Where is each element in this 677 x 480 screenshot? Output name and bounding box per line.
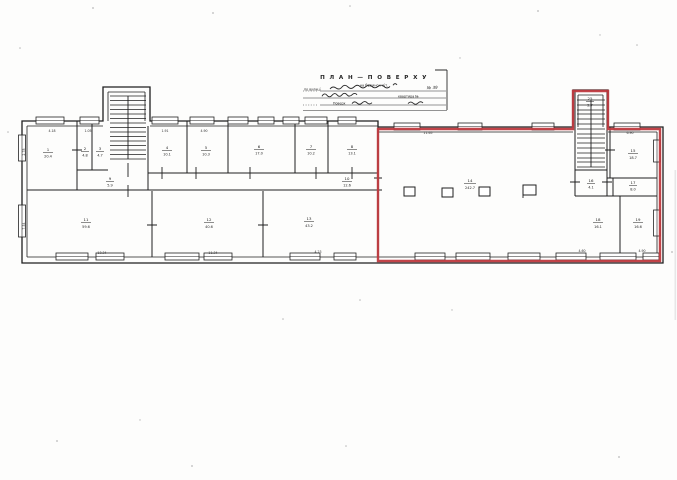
svg-text:16: 16 xyxy=(589,178,594,183)
svg-text:14: 14 xyxy=(468,178,473,183)
scan-edge-shadow xyxy=(675,170,677,320)
svg-text:13: 13 xyxy=(307,216,312,221)
svg-text:6: 6 xyxy=(258,144,261,149)
dim-top-4: 4.90 xyxy=(200,129,207,133)
svg-text:10.1: 10.1 xyxy=(163,153,171,157)
svg-text:17: 17 xyxy=(631,180,636,185)
svg-text:5: 5 xyxy=(205,145,208,150)
dim-top-2: 1.05 xyxy=(84,129,91,133)
room-label-hall: 14242.7 xyxy=(464,178,476,190)
room-label-5: 510.3 xyxy=(201,145,211,157)
dim-bottom-1: 13.34 xyxy=(97,251,106,255)
svg-text:15: 15 xyxy=(631,148,636,153)
dim-top-1: 4.18 xyxy=(48,129,55,133)
flat-label: квартира № xyxy=(398,94,419,98)
svg-text:4: 4 xyxy=(166,145,169,150)
staircase-left xyxy=(110,96,146,177)
room-label-1: 120.4 xyxy=(43,147,53,159)
room-label-lobby-left: 95.9 xyxy=(106,176,114,188)
windows xyxy=(19,117,661,260)
room-label-bottom-right-2: 1916.6 xyxy=(633,217,643,229)
svg-text:8: 8 xyxy=(351,144,354,149)
dim-bottom-3: 4.23 xyxy=(314,250,321,254)
svg-text:12.6: 12.6 xyxy=(343,184,351,188)
svg-text:19: 19 xyxy=(636,217,641,222)
dim-top-3: 1.91 xyxy=(161,129,168,133)
room-label-12: 1240.6 xyxy=(204,217,214,229)
dim-bottom-right-2: 4.90 xyxy=(638,249,645,253)
svg-text:17.0: 17.0 xyxy=(255,152,263,156)
svg-text:20.4: 20.4 xyxy=(44,155,53,159)
street-label: по вулиці xyxy=(304,87,321,91)
svg-text:18.7: 18.7 xyxy=(629,156,637,160)
svg-text:59.6: 59.6 xyxy=(82,225,90,229)
street-number-handwritten: № 39 xyxy=(426,85,438,91)
room-label-lobby-right: 164.1 xyxy=(587,178,595,190)
room-label-4: 410.1 xyxy=(162,145,172,157)
room-label-2: 24.8 xyxy=(81,146,89,158)
svg-text:13.1: 13.1 xyxy=(348,152,356,156)
svg-text:25: 25 xyxy=(588,96,593,101)
exterior-walls xyxy=(22,87,663,263)
room-labels: 120.4 24.8 34.7 410.1 510.3 617.0 710.2 … xyxy=(43,96,643,229)
dim-right-top: 6.90 xyxy=(626,131,633,135)
room-label-top-right: 1518.7 xyxy=(628,148,638,160)
svg-text:7: 7 xyxy=(310,144,313,149)
room-label-6: 617.0 xyxy=(254,144,264,156)
dim-left-2: 7.54 xyxy=(22,222,26,229)
staircase-right xyxy=(577,100,605,167)
svg-text:4.1: 4.1 xyxy=(588,186,594,190)
svg-text:4.8: 4.8 xyxy=(82,154,88,158)
dim-left-1: 2.78 xyxy=(22,148,26,155)
highlight-outline xyxy=(378,91,660,261)
svg-text:11: 11 xyxy=(84,217,89,222)
room-label-8: 813.1 xyxy=(347,144,357,156)
title-block-border xyxy=(435,70,447,110)
svg-text:43.2: 43.2 xyxy=(305,224,313,228)
svg-text:3: 3 xyxy=(99,146,102,151)
title-block: П Л А Н — П О В Е Р Х У на будинок літ. … xyxy=(303,70,447,111)
room-label-3: 34.7 xyxy=(96,146,104,158)
svg-text:10.2: 10.2 xyxy=(307,152,315,156)
svg-text:4.7: 4.7 xyxy=(97,154,103,158)
svg-text:2.7: 2.7 xyxy=(587,104,593,108)
scanned-floorplan-page: П Л А Н — П О В Е Р Х У на будинок літ. … xyxy=(0,0,677,480)
svg-text:12: 12 xyxy=(207,217,212,222)
svg-text:10: 10 xyxy=(345,176,350,181)
svg-text:2: 2 xyxy=(84,146,87,151)
svg-text:9: 9 xyxy=(109,176,112,181)
svg-text:5.9: 5.9 xyxy=(107,184,113,188)
svg-text:40.6: 40.6 xyxy=(205,225,213,229)
svg-text:16.1: 16.1 xyxy=(594,225,602,229)
svg-text:10.3: 10.3 xyxy=(202,153,210,157)
svg-text:16.6: 16.6 xyxy=(634,225,642,229)
dim-hall-top: 11.65 xyxy=(423,131,432,135)
room-label-corridor: 1012.6 xyxy=(342,176,352,188)
room-label-small-right: 178.0 xyxy=(629,180,637,192)
floor-label: Поверх xyxy=(333,101,346,105)
dim-bottom-right-1: 4.60 xyxy=(578,249,585,253)
room-label-11: 1159.6 xyxy=(81,217,91,229)
interior-walls xyxy=(27,90,657,257)
room-label-stair-landing: 252.7 xyxy=(586,96,594,108)
room-label-bottom-right-1: 1816.1 xyxy=(593,217,603,229)
svg-text:8.0: 8.0 xyxy=(630,188,636,192)
dimension-labels: 4.18 1.05 1.91 4.90 2.78 7.54 13.34 11.3… xyxy=(22,129,646,255)
svg-text:242.7: 242.7 xyxy=(465,186,475,190)
floorplan-drawing: П Л А Н — П О В Е Р Х У на будинок літ. … xyxy=(0,0,677,480)
svg-text:1: 1 xyxy=(47,147,50,152)
room-label-7: 710.2 xyxy=(306,144,316,156)
plan-title: П Л А Н — П О В Е Р Х У xyxy=(320,75,428,81)
dim-bottom-2: 11.34 xyxy=(208,251,217,255)
room-label-13: 1343.2 xyxy=(304,216,314,228)
svg-text:18: 18 xyxy=(596,217,601,222)
